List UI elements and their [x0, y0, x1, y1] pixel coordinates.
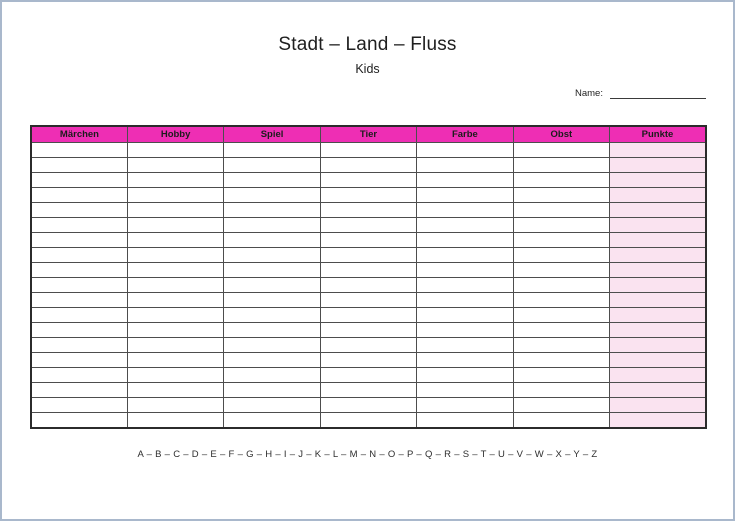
entry-cell	[224, 158, 320, 173]
entry-cell	[31, 383, 127, 398]
entry-cell	[417, 248, 513, 263]
entry-cell	[31, 353, 127, 368]
entry-cell	[127, 413, 223, 429]
table-header: MärchenHobbySpielTierFarbeObstPunkte	[31, 126, 706, 143]
entry-cell	[31, 323, 127, 338]
entry-cell	[417, 368, 513, 383]
entry-cell	[320, 263, 416, 278]
entry-cell	[417, 278, 513, 293]
page: Stadt – Land – Fluss Kids Name: MärchenH…	[0, 0, 735, 521]
entry-cell	[224, 368, 320, 383]
entry-cell	[224, 188, 320, 203]
entry-cell	[513, 203, 609, 218]
column-header-farbe: Farbe	[417, 126, 513, 143]
entry-cell	[127, 158, 223, 173]
entry-cell	[513, 368, 609, 383]
entry-cell	[417, 158, 513, 173]
table-header-row: MärchenHobbySpielTierFarbeObstPunkte	[31, 126, 706, 143]
entry-cell	[320, 218, 416, 233]
entry-cell	[31, 368, 127, 383]
table-row	[31, 353, 706, 368]
entry-cell	[513, 338, 609, 353]
entry-cell	[417, 173, 513, 188]
page-title: Stadt – Land – Fluss	[2, 33, 733, 57]
entry-cell	[224, 398, 320, 413]
entry-cell	[320, 308, 416, 323]
table-row	[31, 383, 706, 398]
entry-cell	[224, 143, 320, 158]
punkte-cell	[610, 413, 706, 429]
entry-cell	[224, 413, 320, 429]
punkte-cell	[610, 188, 706, 203]
page-subtitle: Kids	[2, 62, 733, 77]
column-header-tier: Tier	[320, 126, 416, 143]
punkte-cell	[610, 323, 706, 338]
entry-cell	[320, 383, 416, 398]
punkte-cell	[610, 278, 706, 293]
entry-cell	[513, 248, 609, 263]
entry-cell	[31, 158, 127, 173]
entry-cell	[320, 368, 416, 383]
entry-cell	[224, 323, 320, 338]
entry-cell	[513, 233, 609, 248]
entry-cell	[417, 263, 513, 278]
entry-cell	[513, 188, 609, 203]
entry-cell	[513, 323, 609, 338]
entry-cell	[417, 383, 513, 398]
entry-cell	[224, 278, 320, 293]
entry-cell	[417, 398, 513, 413]
entry-cell	[513, 173, 609, 188]
entry-cell	[31, 263, 127, 278]
entry-cell	[513, 143, 609, 158]
entry-cell	[127, 278, 223, 293]
entry-cell	[513, 308, 609, 323]
entry-cell	[224, 203, 320, 218]
entry-cell	[417, 203, 513, 218]
entry-cell	[127, 293, 223, 308]
entry-cell	[417, 338, 513, 353]
punkte-cell	[610, 203, 706, 218]
table-row	[31, 368, 706, 383]
punkte-cell	[610, 308, 706, 323]
table-row	[31, 233, 706, 248]
alphabet-line: A – B – C – D – E – F – G – H – I – J – …	[2, 449, 733, 460]
game-table: MärchenHobbySpielTierFarbeObstPunkte	[30, 125, 707, 429]
entry-cell	[513, 353, 609, 368]
table-row	[31, 158, 706, 173]
entry-cell	[127, 338, 223, 353]
entry-cell	[127, 143, 223, 158]
entry-cell	[224, 338, 320, 353]
entry-cell	[224, 248, 320, 263]
name-row: Name:	[575, 86, 706, 99]
table-row	[31, 218, 706, 233]
entry-cell	[320, 233, 416, 248]
entry-cell	[224, 263, 320, 278]
entry-cell	[417, 323, 513, 338]
entry-cell	[224, 293, 320, 308]
entry-cell	[417, 218, 513, 233]
entry-cell	[31, 203, 127, 218]
column-header-hobby: Hobby	[127, 126, 223, 143]
entry-cell	[513, 398, 609, 413]
table-row	[31, 263, 706, 278]
entry-cell	[320, 203, 416, 218]
name-underline	[610, 86, 706, 99]
entry-cell	[127, 353, 223, 368]
column-header-marchen: Märchen	[31, 126, 127, 143]
table-row	[31, 308, 706, 323]
entry-cell	[224, 233, 320, 248]
entry-cell	[31, 233, 127, 248]
entry-cell	[417, 308, 513, 323]
entry-cell	[513, 218, 609, 233]
name-label: Name:	[575, 88, 603, 99]
entry-cell	[320, 173, 416, 188]
table-row	[31, 323, 706, 338]
entry-cell	[127, 203, 223, 218]
table-row	[31, 338, 706, 353]
punkte-cell	[610, 398, 706, 413]
column-header-obst: Obst	[513, 126, 609, 143]
entry-cell	[320, 278, 416, 293]
entry-cell	[513, 263, 609, 278]
entry-cell	[417, 143, 513, 158]
punkte-cell	[610, 383, 706, 398]
entry-cell	[513, 413, 609, 429]
punkte-cell	[610, 143, 706, 158]
table-row	[31, 203, 706, 218]
table-row	[31, 398, 706, 413]
entry-cell	[127, 383, 223, 398]
entry-cell	[320, 293, 416, 308]
table-row	[31, 143, 706, 158]
punkte-cell	[610, 293, 706, 308]
entry-cell	[127, 263, 223, 278]
column-header-spiel: Spiel	[224, 126, 320, 143]
punkte-cell	[610, 338, 706, 353]
punkte-cell	[610, 233, 706, 248]
entry-cell	[31, 218, 127, 233]
entry-cell	[320, 398, 416, 413]
punkte-cell	[610, 368, 706, 383]
entry-cell	[513, 158, 609, 173]
punkte-cell	[610, 218, 706, 233]
entry-cell	[224, 173, 320, 188]
table-row	[31, 188, 706, 203]
entry-cell	[320, 353, 416, 368]
entry-cell	[127, 173, 223, 188]
table-row	[31, 413, 706, 429]
entry-cell	[417, 188, 513, 203]
entry-cell	[31, 248, 127, 263]
entry-cell	[320, 158, 416, 173]
entry-cell	[31, 188, 127, 203]
table-row	[31, 248, 706, 263]
entry-cell	[320, 188, 416, 203]
entry-cell	[417, 233, 513, 248]
entry-cell	[31, 413, 127, 429]
entry-cell	[31, 398, 127, 413]
entry-cell	[417, 353, 513, 368]
entry-cell	[31, 143, 127, 158]
entry-cell	[31, 173, 127, 188]
entry-cell	[127, 218, 223, 233]
table-row	[31, 278, 706, 293]
entry-cell	[127, 248, 223, 263]
table-row	[31, 173, 706, 188]
entry-cell	[127, 323, 223, 338]
entry-cell	[320, 323, 416, 338]
entry-cell	[320, 143, 416, 158]
column-header-punkte: Punkte	[610, 126, 706, 143]
entry-cell	[320, 338, 416, 353]
entry-cell	[513, 278, 609, 293]
entry-cell	[513, 383, 609, 398]
punkte-cell	[610, 248, 706, 263]
entry-cell	[31, 338, 127, 353]
entry-cell	[513, 293, 609, 308]
entry-cell	[31, 278, 127, 293]
entry-cell	[417, 293, 513, 308]
entry-cell	[127, 233, 223, 248]
entry-cell	[224, 218, 320, 233]
punkte-cell	[610, 263, 706, 278]
entry-cell	[224, 308, 320, 323]
entry-cell	[417, 413, 513, 429]
entry-cell	[127, 308, 223, 323]
entry-cell	[31, 308, 127, 323]
table-body	[31, 143, 706, 429]
entry-cell	[127, 398, 223, 413]
entry-cell	[320, 413, 416, 429]
punkte-cell	[610, 158, 706, 173]
punkte-cell	[610, 173, 706, 188]
entry-cell	[224, 383, 320, 398]
entry-cell	[320, 248, 416, 263]
table-row	[31, 293, 706, 308]
entry-cell	[224, 353, 320, 368]
entry-cell	[31, 293, 127, 308]
entry-cell	[127, 368, 223, 383]
entry-cell	[127, 188, 223, 203]
punkte-cell	[610, 353, 706, 368]
